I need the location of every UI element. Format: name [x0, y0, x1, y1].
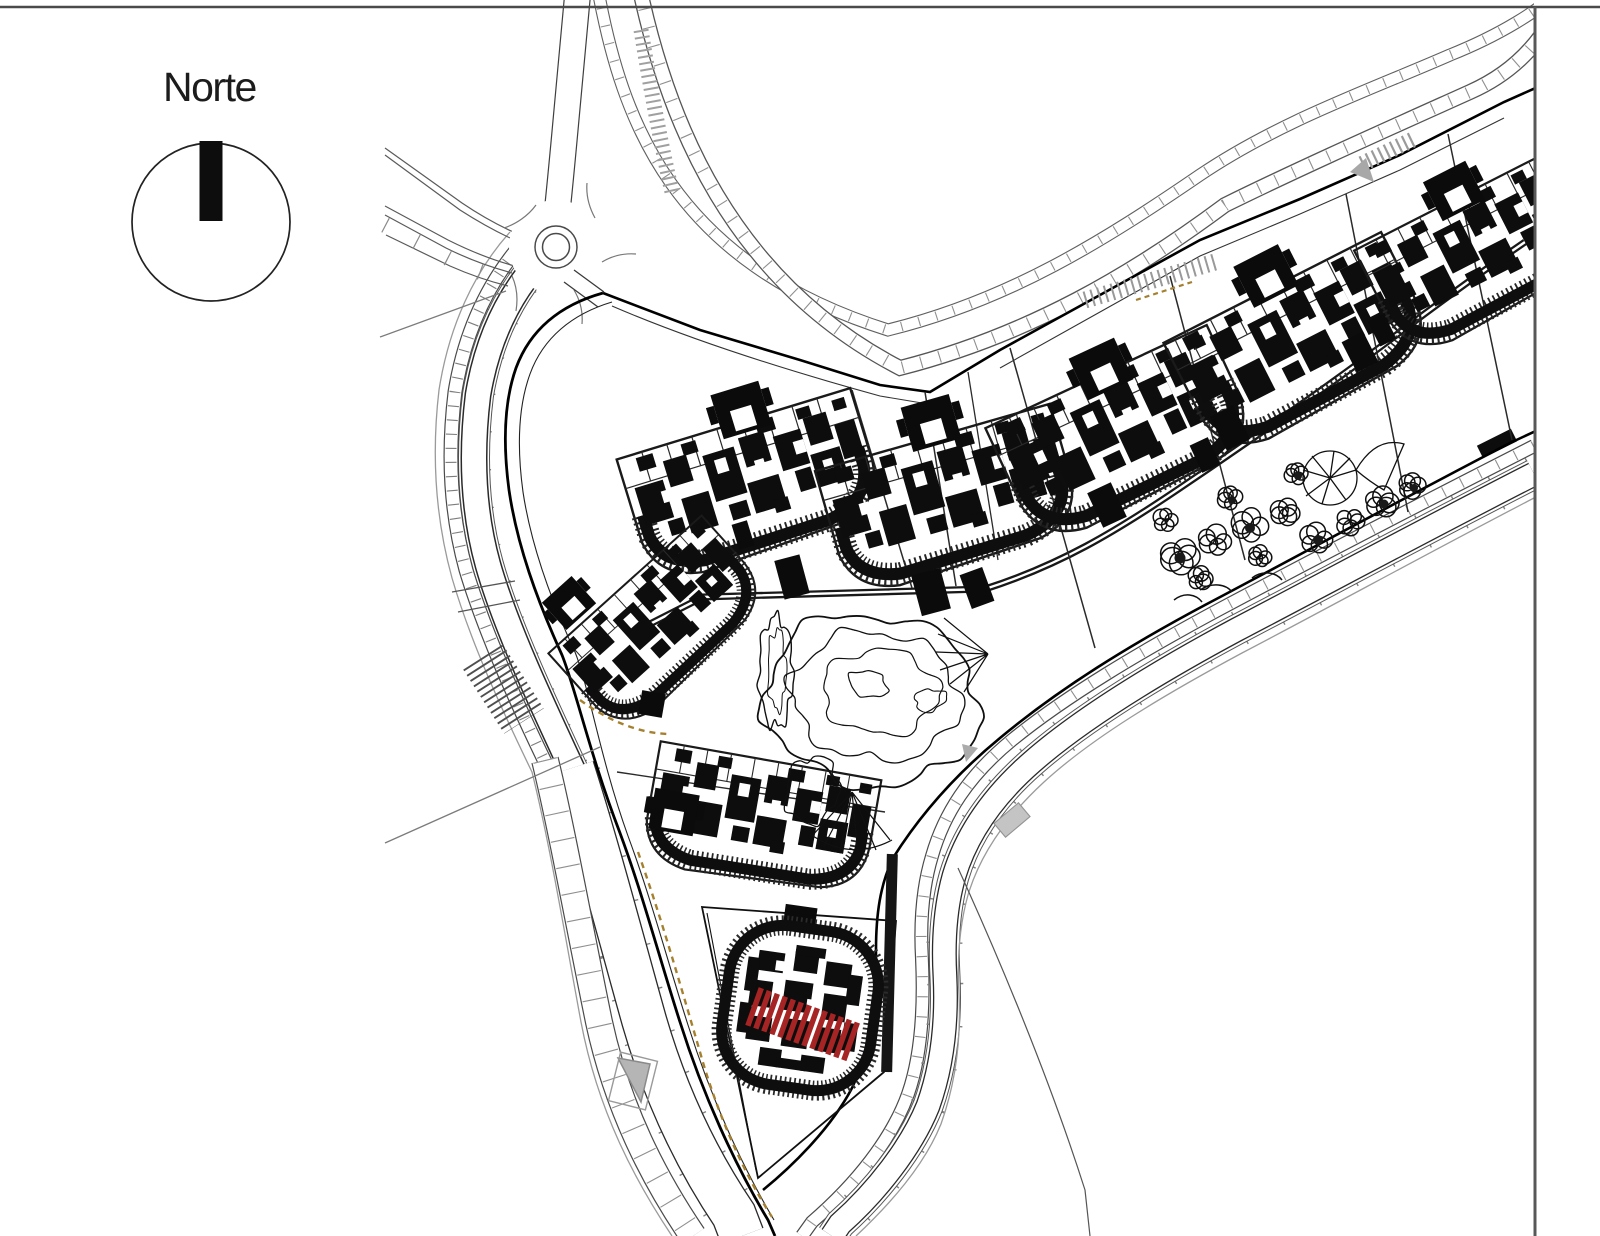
svg-text:Norte: Norte	[163, 64, 256, 110]
